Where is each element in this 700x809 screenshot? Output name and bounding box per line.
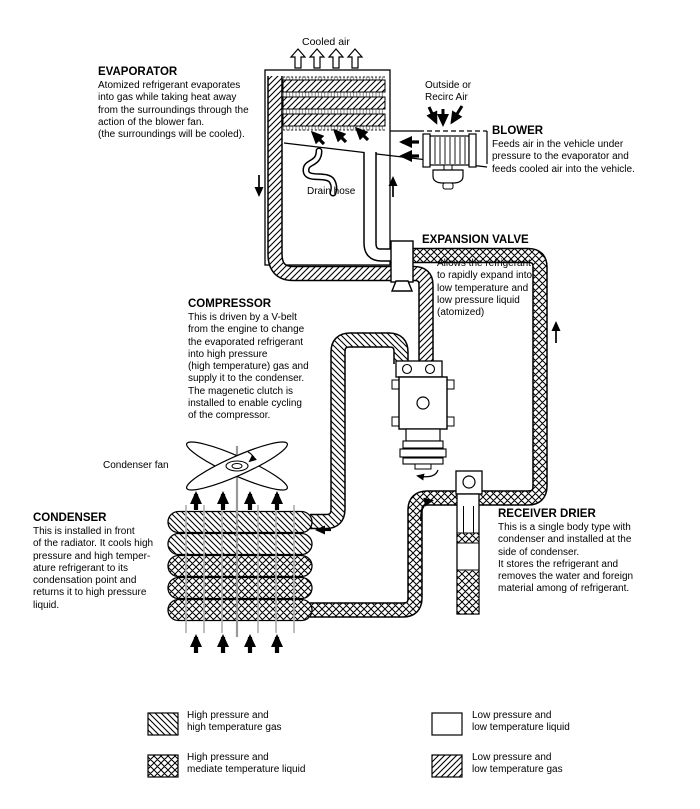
expansion-valve-heading: EXPANSION VALVE	[422, 234, 529, 247]
compressor-port	[426, 365, 435, 374]
blower-description: Feeds air in the vehicle under pressure …	[492, 139, 635, 176]
evaporator-airflow-arrows	[313, 129, 368, 144]
legend-swatch-low-pressure-gas	[432, 755, 462, 777]
condenser-coil	[168, 512, 312, 621]
outside-air-arrows	[429, 106, 462, 124]
compressor-port	[403, 365, 412, 374]
blower-motor	[433, 165, 463, 189]
legend-label-low-pressure-liquid: Low pressure and low temperature liquid	[472, 710, 570, 735]
receiver-drier-description: This is a single body type with condense…	[498, 522, 633, 596]
compressor-pulley	[400, 441, 446, 469]
pipe-discharge-high-pressure-gas	[310, 340, 401, 522]
legend-label-high-pressure-liquid: High pressure and mediate temperature li…	[187, 752, 305, 777]
blower-graphic	[390, 106, 487, 189]
evaporator-heading: EVAPORATOR	[98, 66, 177, 79]
legend-swatch-high-pressure-gas	[148, 713, 178, 735]
condenser-graphic	[168, 435, 331, 653]
expansion-valve-description: Allows the refrigerant to rapidly expand…	[437, 258, 532, 319]
drier-sight-glass-icon	[463, 476, 475, 488]
legend-label-low-pressure-gas: Low pressure and low temperature gas	[472, 752, 563, 777]
evaporator-description: Atomized refrigerant evaporates into gas…	[98, 80, 249, 141]
condenser-fan-label: Condenser fan	[103, 460, 169, 472]
expansion-valve-graphic	[391, 241, 413, 291]
legend-swatch-low-pressure-liquid	[432, 713, 462, 735]
compressor-graphic	[392, 361, 454, 477]
refrigeration-cycle-diagram: Cooled air EVAPORATOR Atomized refrigera…	[0, 0, 700, 809]
blower-output-arrows	[402, 142, 419, 156]
condenser-description: This is installed in front of the radiat…	[33, 526, 153, 612]
blower-fan-cage	[423, 134, 476, 167]
receiver-drier-heading: RECEIVER DRIER	[498, 508, 596, 521]
pulley-rotation-arrow	[418, 470, 438, 477]
condenser-heading: CONDENSER	[33, 512, 106, 525]
blower-heading: BLOWER	[492, 125, 543, 138]
legend-label-high-pressure-gas: High pressure and high temperature gas	[187, 710, 282, 735]
cooled-air-arrows	[291, 49, 362, 68]
legend-swatch-high-pressure-liquid	[148, 755, 178, 777]
pipe-low-pressure-liquid	[370, 152, 392, 255]
compressor-description: This is driven by a V-belt from the engi…	[188, 312, 309, 423]
evaporator-core-tubes	[283, 80, 385, 126]
outside-air-label: Outside or Recirc Air	[425, 80, 471, 105]
drain-hose-label: Drain hose	[307, 186, 355, 198]
compressor-heading: COMPRESSOR	[188, 298, 271, 311]
cooled-air-label: Cooled air	[302, 36, 350, 48]
